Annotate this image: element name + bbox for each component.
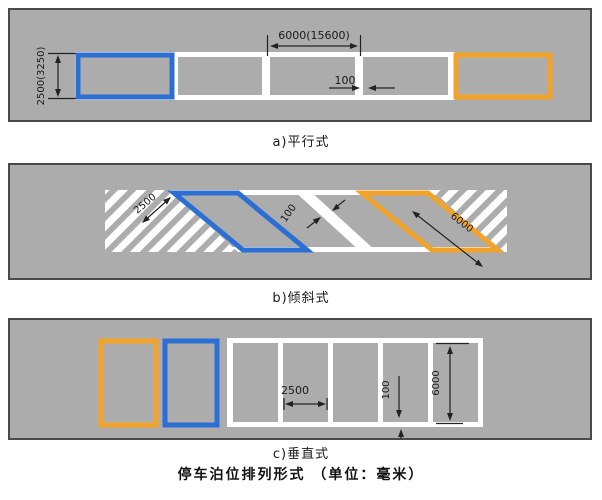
dim-linewidth-a-label: 100 [335, 74, 356, 87]
stall-c3 [333, 343, 378, 422]
dim-depth-c-label: 6000 [431, 370, 442, 395]
caption-panel-c: c)垂直式 [0, 443, 602, 462]
panel-b-angled-diagram: 2500 100 6000 [8, 163, 592, 280]
figure-title: 停车泊位排列形式 （单位：毫米） [0, 464, 602, 484]
stall-c1 [233, 343, 278, 422]
dim-depth-a-label: 2500(3250) [36, 47, 47, 106]
dim-linewidth-c-label: 100 [381, 380, 392, 399]
panel-c-perpendicular-diagram: 2500 100 6000 [8, 318, 592, 440]
caption-panel-a: a)平行式 [0, 131, 602, 150]
caption-panel-b: b)倾斜式 [0, 287, 602, 306]
stall-c2 [283, 343, 328, 422]
dim-width-c-label: 2500 [281, 384, 309, 397]
stall-a2 [178, 57, 262, 95]
parking-layout-figure: 6000(15600) 100 2500(3250) a)平行式 [0, 0, 602, 500]
panel-a-parallel-diagram: 6000(15600) 100 2500(3250) [8, 8, 592, 122]
dim-length-a-label: 6000(15600) [278, 29, 350, 42]
stall-marking-orange-a [456, 55, 550, 97]
stall-marking-blue-a [78, 55, 172, 97]
